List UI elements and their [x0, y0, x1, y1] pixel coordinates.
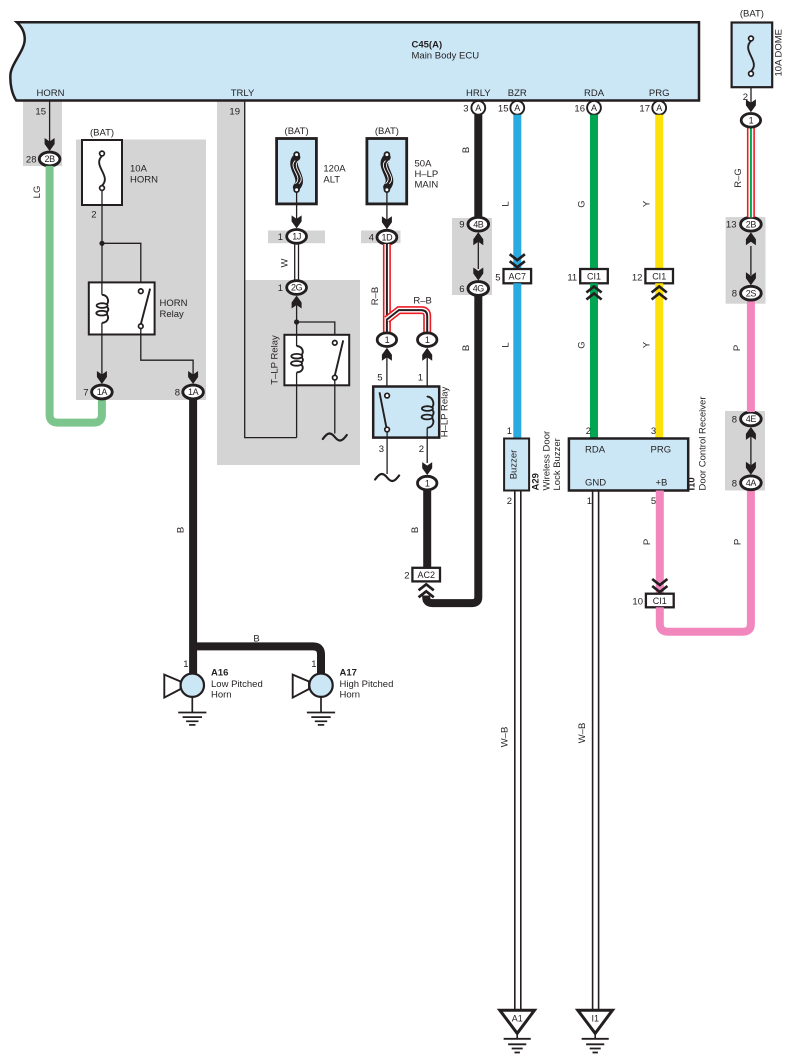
svg-text:15: 15 — [35, 107, 46, 118]
svg-text:B: B — [253, 634, 259, 645]
svg-text:A16: A16 — [211, 667, 228, 678]
svg-text:I10: I10 — [687, 477, 698, 490]
svg-text:50A: 50A — [415, 159, 433, 170]
svg-text:Lock Buzzer: Lock Buzzer — [552, 438, 563, 490]
svg-text:Horn: Horn — [211, 690, 232, 701]
svg-text:T–LP Relay: T–LP Relay — [270, 335, 281, 385]
svg-text:TRLY: TRLY — [231, 88, 255, 99]
svg-text:P: P — [732, 539, 743, 545]
svg-text:C45(A): C45(A) — [412, 40, 443, 51]
svg-text:6: 6 — [459, 284, 464, 295]
svg-text:HORN: HORN — [130, 175, 158, 186]
svg-text:120A: 120A — [323, 164, 346, 175]
svg-text:B: B — [461, 147, 472, 153]
svg-text:(BAT): (BAT) — [740, 9, 764, 20]
svg-text:1: 1 — [425, 335, 430, 345]
svg-text:12: 12 — [632, 273, 643, 284]
svg-text:2: 2 — [507, 496, 512, 507]
svg-text:Y: Y — [642, 341, 653, 348]
svg-text:(BAT): (BAT) — [375, 126, 399, 137]
svg-text:A29: A29 — [531, 473, 542, 490]
svg-text:G: G — [577, 200, 588, 207]
svg-text:28: 28 — [26, 155, 37, 166]
svg-text:4G: 4G — [473, 284, 485, 294]
svg-text:H–LP Relay: H–LP Relay — [440, 386, 451, 437]
svg-text:8: 8 — [175, 388, 180, 399]
svg-text:2: 2 — [743, 92, 748, 103]
svg-text:LG: LG — [32, 186, 43, 199]
svg-text:4: 4 — [369, 233, 374, 244]
svg-text:BZR: BZR — [508, 88, 527, 99]
svg-text:10: 10 — [632, 596, 643, 607]
svg-text:W–B: W–B — [577, 723, 588, 744]
svg-text:1: 1 — [425, 478, 430, 488]
svg-text:High Pitched: High Pitched — [340, 679, 394, 690]
svg-text:7: 7 — [83, 388, 88, 399]
svg-text:Wireless Door: Wireless Door — [541, 431, 552, 491]
svg-text:11: 11 — [567, 273, 577, 284]
svg-text:GND: GND — [585, 478, 606, 489]
svg-text:1: 1 — [507, 426, 512, 437]
svg-text:2B: 2B — [44, 154, 55, 164]
svg-text:AC7: AC7 — [509, 272, 527, 282]
svg-text:3: 3 — [651, 426, 656, 437]
svg-text:Relay: Relay — [160, 309, 185, 320]
svg-text:W: W — [280, 258, 291, 267]
svg-text:R–G: R–G — [733, 168, 744, 188]
svg-text:A: A — [656, 103, 662, 113]
svg-text:5: 5 — [495, 273, 500, 284]
svg-text:PRG: PRG — [651, 445, 672, 456]
svg-text:L: L — [501, 342, 512, 347]
svg-text:8: 8 — [732, 415, 737, 426]
svg-text:2G: 2G — [291, 283, 303, 293]
svg-text:R–B: R–B — [413, 296, 431, 307]
svg-text:A1: A1 — [512, 1014, 523, 1024]
svg-text:1A: 1A — [97, 387, 108, 397]
svg-text:8: 8 — [732, 289, 737, 300]
svg-text:1: 1 — [311, 659, 316, 670]
svg-text:19: 19 — [229, 107, 240, 118]
svg-text:2: 2 — [586, 426, 591, 437]
svg-text:Main Body ECU: Main Body ECU — [412, 51, 480, 62]
svg-text:1J: 1J — [292, 232, 301, 242]
svg-text:B: B — [410, 527, 421, 533]
svg-text:1: 1 — [278, 232, 283, 243]
svg-text:AC2: AC2 — [417, 570, 435, 580]
svg-text:Door Control Receiver: Door Control Receiver — [697, 397, 708, 491]
svg-text:A: A — [591, 103, 597, 113]
svg-text:2B: 2B — [746, 219, 757, 229]
svg-text:10A: 10A — [130, 164, 148, 175]
svg-text:L: L — [501, 201, 512, 206]
svg-text:HRLY: HRLY — [466, 88, 491, 99]
svg-text:MAIN: MAIN — [415, 180, 439, 191]
svg-text:(BAT): (BAT) — [285, 126, 309, 137]
svg-text:1: 1 — [749, 116, 754, 126]
svg-text:I1: I1 — [591, 1014, 599, 1024]
svg-text:17: 17 — [639, 104, 650, 115]
svg-text:W–B: W–B — [500, 727, 511, 748]
svg-text:4B: 4B — [473, 219, 484, 229]
svg-text:1: 1 — [278, 283, 283, 294]
svg-text:CI1: CI1 — [653, 596, 667, 606]
svg-text:(BAT): (BAT) — [90, 128, 114, 139]
svg-text:2: 2 — [91, 210, 96, 221]
svg-text:1: 1 — [587, 496, 592, 507]
svg-text:P: P — [642, 539, 653, 545]
svg-text:Horn: Horn — [340, 690, 361, 701]
svg-text:Buzzer: Buzzer — [509, 450, 520, 480]
svg-text:RDA: RDA — [584, 88, 605, 99]
svg-text:B: B — [461, 345, 472, 351]
svg-text:8: 8 — [732, 479, 737, 490]
svg-text:Y: Y — [642, 200, 653, 207]
svg-text:RDA: RDA — [585, 445, 606, 456]
svg-text:2: 2 — [419, 444, 424, 455]
svg-text:PRG: PRG — [649, 88, 670, 99]
svg-text:5: 5 — [377, 373, 382, 384]
svg-text:1: 1 — [183, 659, 188, 670]
svg-text:A: A — [475, 103, 481, 113]
svg-text:9: 9 — [459, 220, 464, 231]
svg-text:Low Pitched: Low Pitched — [211, 679, 263, 690]
svg-text:A: A — [514, 103, 520, 113]
svg-text:A17: A17 — [340, 667, 357, 678]
svg-text:3: 3 — [463, 104, 468, 115]
svg-text:B: B — [176, 527, 187, 533]
svg-text:HORN: HORN — [37, 88, 65, 99]
svg-text:1: 1 — [385, 335, 390, 345]
svg-text:1: 1 — [418, 373, 423, 384]
svg-text:ALT: ALT — [323, 175, 340, 186]
svg-text:+B: +B — [656, 478, 668, 489]
svg-text:15: 15 — [498, 104, 509, 115]
svg-text:G: G — [577, 341, 588, 348]
svg-text:HORN: HORN — [160, 298, 188, 309]
svg-text:2S: 2S — [746, 288, 757, 298]
svg-text:13: 13 — [726, 220, 737, 231]
svg-text:4A: 4A — [746, 478, 757, 488]
svg-text:5: 5 — [651, 496, 656, 507]
svg-text:16: 16 — [574, 104, 585, 115]
svg-text:P: P — [732, 345, 743, 351]
svg-text:1A: 1A — [188, 387, 199, 397]
svg-text:4E: 4E — [746, 414, 757, 424]
svg-text:CI1: CI1 — [652, 272, 666, 282]
svg-text:R–B: R–B — [370, 287, 381, 305]
svg-text:10A DOME: 10A DOME — [774, 29, 785, 77]
svg-text:CI1: CI1 — [587, 272, 601, 282]
svg-text:2: 2 — [404, 571, 409, 582]
svg-text:3: 3 — [379, 444, 384, 455]
svg-text:H–LP: H–LP — [415, 169, 439, 180]
svg-text:1D: 1D — [382, 232, 394, 242]
